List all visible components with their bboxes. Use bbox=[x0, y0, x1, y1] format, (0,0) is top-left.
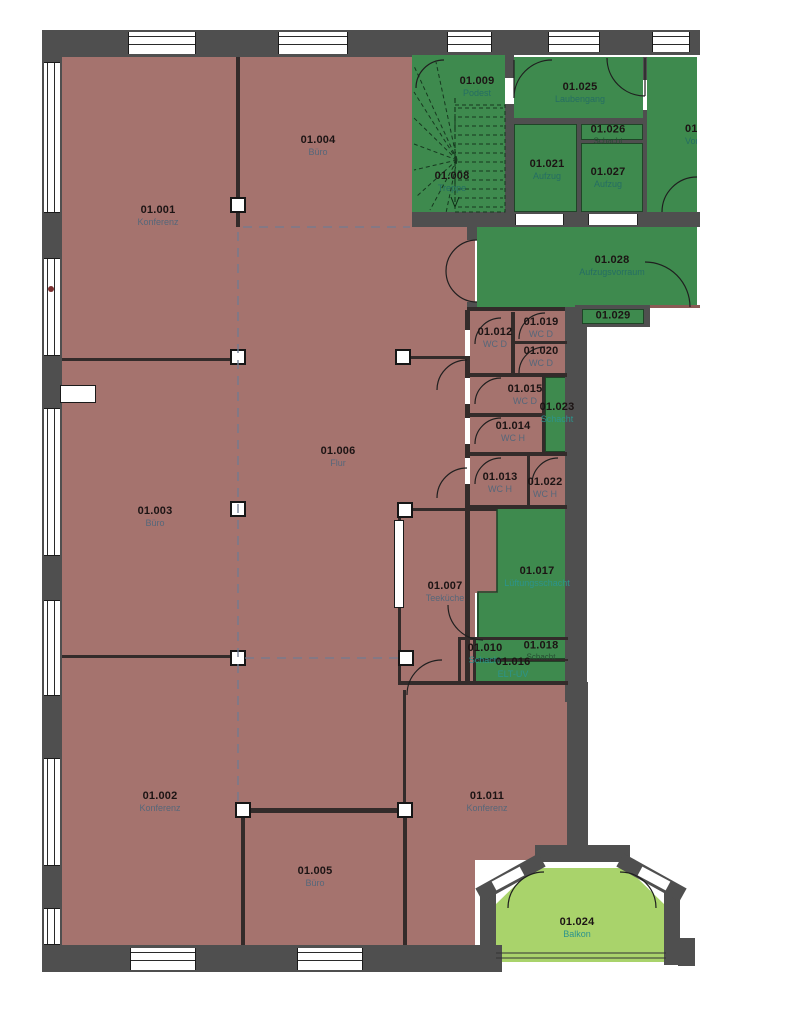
room-01-011-label: 01.011Konferenz bbox=[466, 790, 507, 814]
balcony-railing bbox=[496, 953, 666, 958]
door-gap-balcony-right bbox=[640, 871, 668, 886]
room-01-022-label: 01.022WC H bbox=[528, 476, 563, 500]
room-01-030-label: 01.030 Vorraum bbox=[685, 123, 697, 147]
room-01-024-label: 01.024Balkon bbox=[560, 916, 595, 940]
room-01-019-label: 01.019WC D bbox=[524, 316, 559, 340]
room-01-008-label: 01.008Treppe bbox=[435, 170, 470, 194]
room-01-027-label: 01.027Aufzug bbox=[591, 166, 626, 190]
room-01-009-label: 01.009Podest bbox=[460, 75, 495, 99]
room-01-013-label: 01.013WC H bbox=[483, 471, 518, 495]
room-01-012-label: 01.012WC D bbox=[478, 326, 513, 350]
room-01-014-label: 01.014WC H bbox=[496, 420, 531, 444]
plan-linework bbox=[0, 0, 793, 1024]
room-01-005-label: 01.005Büro bbox=[298, 865, 333, 889]
room-01-016-label: 01.016ELT-UV bbox=[496, 656, 531, 680]
room-01-026-label: 01.026Schacht bbox=[591, 124, 626, 147]
room-01-006-label: 01.006Flur bbox=[321, 445, 356, 469]
room-01-001-label: 01.001Konferenz bbox=[137, 204, 178, 228]
dashed-boundary-lines bbox=[238, 227, 410, 805]
room-01-002-label: 01.002Konferenz bbox=[139, 790, 180, 814]
room-01-007-label: 01.007Teeküche bbox=[426, 580, 465, 604]
room-01-015-label: 01.015WC D bbox=[508, 383, 543, 407]
room-01-003-label: 01.003Büro bbox=[138, 505, 173, 529]
room-01-025-label: 01.025Laubengang bbox=[555, 81, 605, 105]
room-outline-01-017 bbox=[478, 509, 497, 637]
floor-plan: 01.030 Vorraum bbox=[0, 0, 793, 1024]
room-01-023-label: 01.023Schacht bbox=[540, 401, 575, 425]
room-01-017-label: 01.017Lüftungsschacht bbox=[504, 565, 570, 589]
room-01-028-label: 01.028Aufzugsvorraum bbox=[579, 254, 645, 278]
room-01-004-label: 01.004Büro bbox=[301, 134, 336, 158]
room-01-020-label: 01.020WC D bbox=[524, 345, 559, 369]
room-01-021-label: 01.021Aufzug bbox=[530, 158, 565, 182]
room-01-029-label: 01.029 bbox=[596, 309, 631, 322]
